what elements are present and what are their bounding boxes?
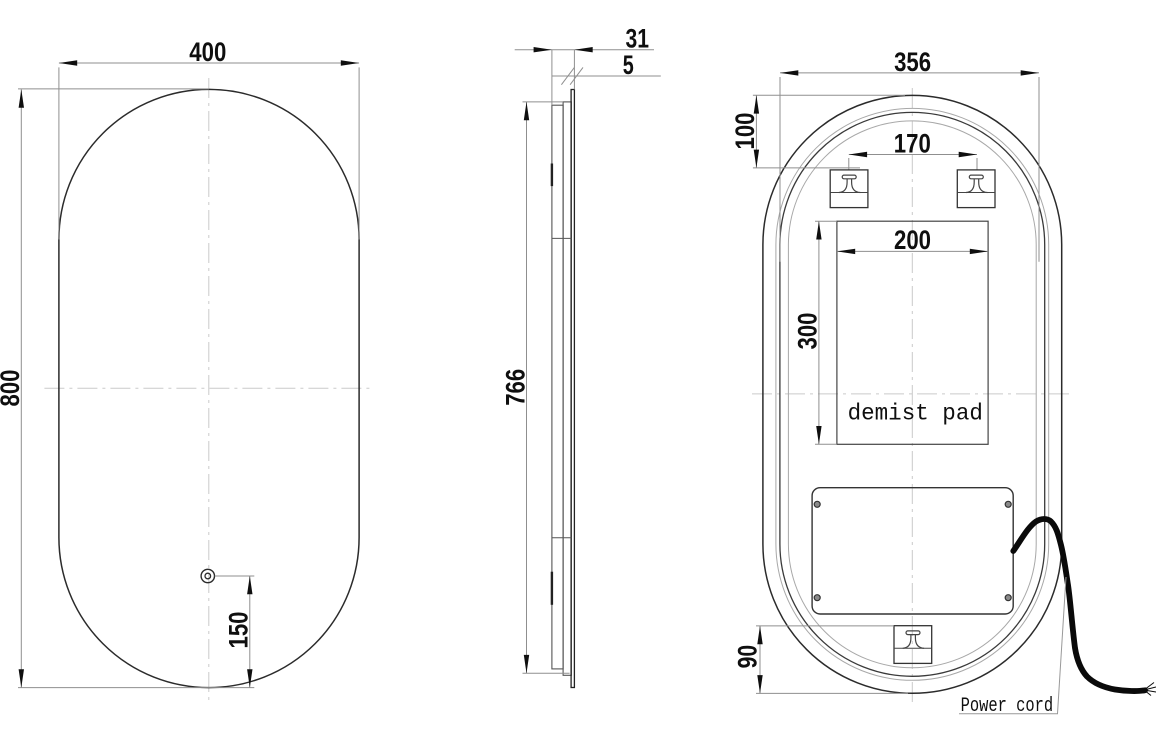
- svg-text:800: 800: [0, 370, 25, 407]
- svg-text:Power cord: Power cord: [961, 695, 1054, 718]
- svg-text:300: 300: [793, 313, 823, 350]
- svg-text:200: 200: [894, 225, 931, 255]
- svg-text:100: 100: [730, 113, 760, 150]
- svg-text:90: 90: [733, 645, 763, 669]
- svg-text:400: 400: [189, 37, 226, 67]
- svg-text:demist pad: demist pad: [848, 400, 983, 426]
- svg-text:5: 5: [623, 50, 634, 80]
- svg-text:356: 356: [894, 47, 931, 77]
- svg-text:150: 150: [224, 612, 254, 649]
- svg-text:766: 766: [500, 369, 530, 406]
- svg-text:170: 170: [894, 128, 931, 158]
